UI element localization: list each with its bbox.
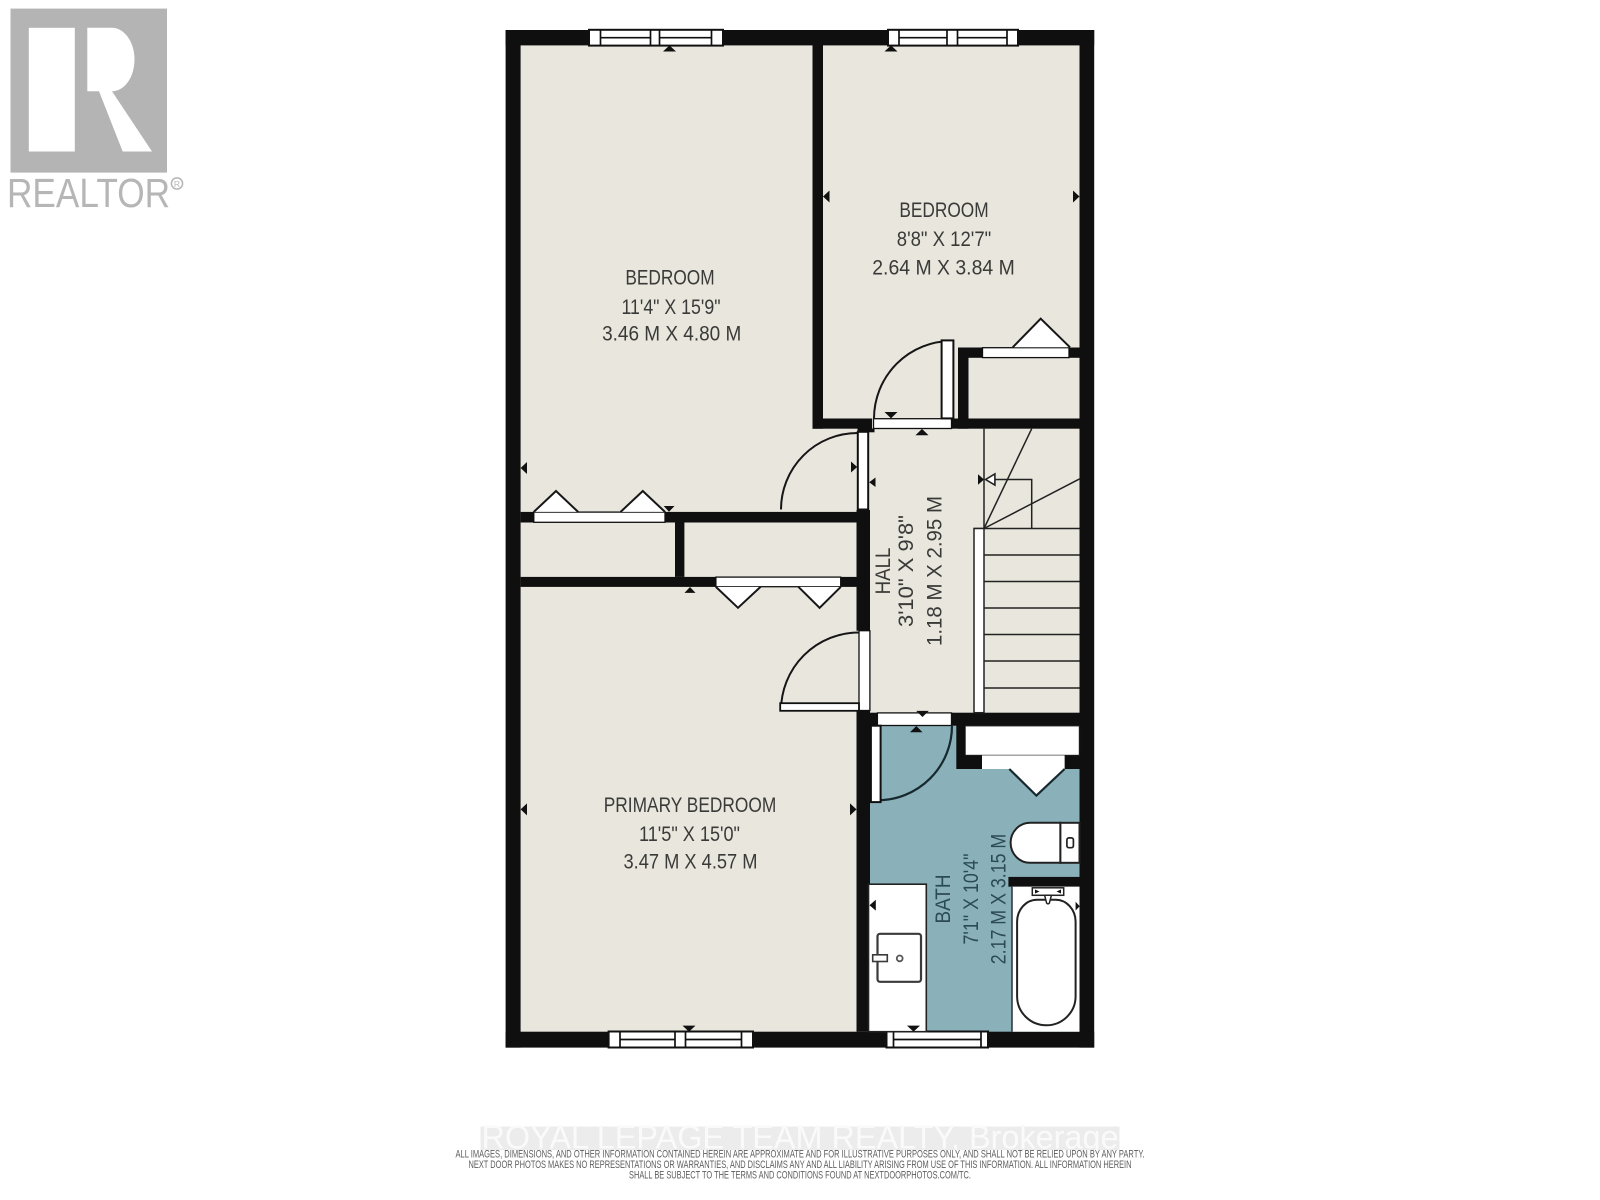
svg-text:BATH: BATH: [931, 875, 955, 924]
svg-text:2.17 M X 3.15 M: 2.17 M X 3.15 M: [987, 834, 1011, 965]
svg-text:8'8" X 12'7": 8'8" X 12'7": [897, 227, 992, 251]
svg-text:3.46 M X 4.80 M: 3.46 M X 4.80 M: [602, 322, 741, 346]
svg-text:BEDROOM: BEDROOM: [625, 266, 714, 290]
svg-text:SHALL BE SUBJECT TO THE TERMS: SHALL BE SUBJECT TO THE TERMS AND CONDIT…: [629, 1170, 971, 1182]
svg-text:HALL: HALL: [871, 548, 895, 595]
svg-text:3.47 M X 4.57 M: 3.47 M X 4.57 M: [624, 850, 758, 874]
svg-text:PRIMARY BEDROOM: PRIMARY BEDROOM: [604, 793, 777, 817]
svg-text:R: R: [174, 179, 180, 189]
svg-text:BEDROOM: BEDROOM: [899, 198, 988, 222]
svg-text:11'4" X 15'9": 11'4" X 15'9": [622, 295, 721, 319]
svg-text:REALTOR: REALTOR: [7, 170, 170, 216]
svg-text:1.18 M X 2.95 M: 1.18 M X 2.95 M: [923, 496, 947, 646]
svg-text:3'10" X 9'8": 3'10" X 9'8": [894, 515, 918, 627]
svg-text:11'5" X 15'0": 11'5" X 15'0": [639, 822, 740, 846]
svg-text:2.64 M X 3.84 M: 2.64 M X 3.84 M: [872, 256, 1015, 280]
svg-text:7'1" X 10'4": 7'1" X 10'4": [959, 854, 983, 945]
